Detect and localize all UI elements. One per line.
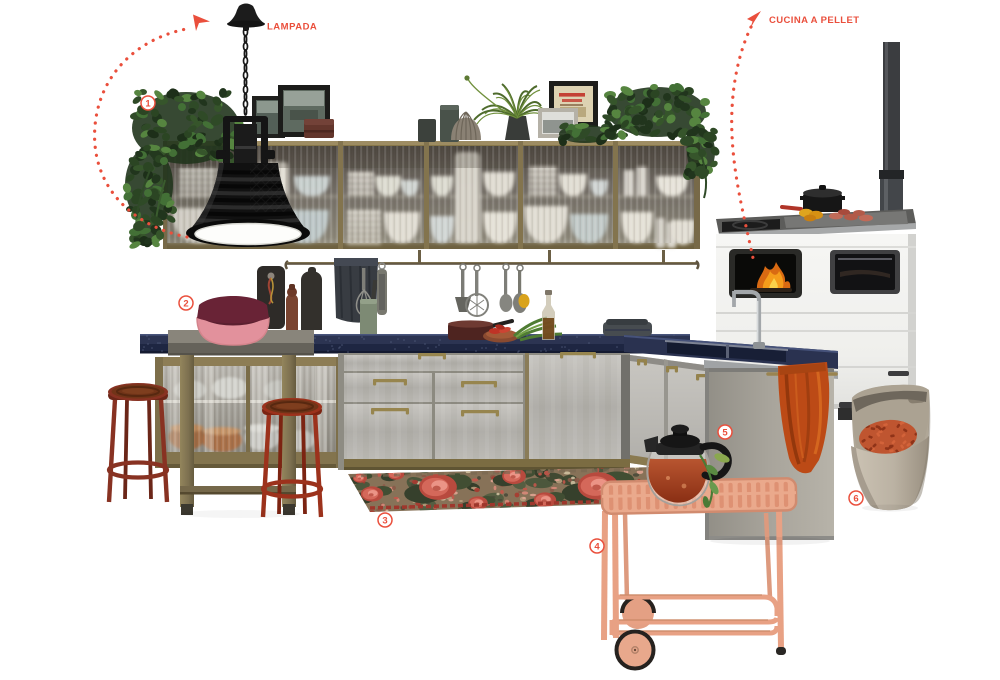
svg-text:5: 5 bbox=[722, 427, 728, 438]
svg-text:1: 1 bbox=[145, 98, 151, 109]
svg-text:2: 2 bbox=[183, 298, 188, 309]
svg-text:LAMPADA: LAMPADA bbox=[267, 22, 317, 33]
svg-text:CUCINA A PELLET: CUCINA A PELLET bbox=[769, 15, 859, 26]
svg-text:6: 6 bbox=[853, 493, 858, 504]
svg-text:3: 3 bbox=[382, 515, 387, 526]
svg-text:4: 4 bbox=[594, 541, 600, 552]
